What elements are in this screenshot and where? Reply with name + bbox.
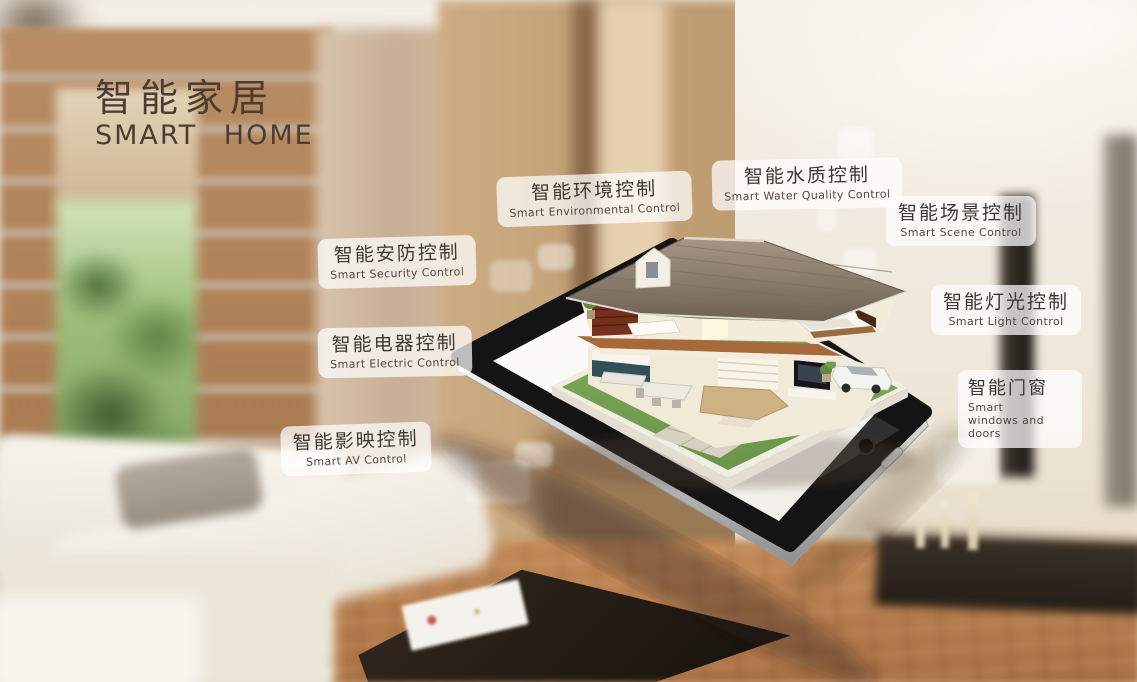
- label-text-zh: 智能安防控制: [329, 240, 464, 268]
- label-text-zh: 智能门窗: [968, 376, 1072, 401]
- car-wheel: [842, 384, 851, 393]
- label-text-zh: 智能场景控制: [898, 201, 1024, 226]
- label-security-control: 智能安防控制 Smart Security Control: [317, 235, 476, 289]
- label-text-en: Smart Scene Control: [898, 226, 1024, 239]
- label-text-zh: 智能电器控制: [330, 331, 460, 358]
- label-text-en: Smart Security Control: [330, 265, 464, 282]
- label-text-en: Smart Light Control: [943, 315, 1069, 328]
- label-text-en: Smart Water Quality Control: [724, 188, 890, 204]
- label-text-zh: 智能水质控制: [724, 163, 891, 191]
- plant-pot: [822, 374, 831, 382]
- poster-title: 智能家居 SMART HOME: [95, 76, 314, 152]
- label-electric-control: 智能电器控制 Smart Electric Control: [318, 326, 472, 379]
- label-light-control: 智能灯光控制 Smart Light Control: [931, 285, 1081, 335]
- label-text-zh: 智能灯光控制: [943, 290, 1069, 315]
- car-wheel: [872, 385, 881, 394]
- label-scene-control: 智能场景控制 Smart Scene Control: [886, 196, 1036, 246]
- label-av-control: 智能影映控制 Smart AV Control: [280, 421, 432, 476]
- title-chinese: 智能家居: [95, 76, 314, 120]
- title-english: SMART HOME: [95, 120, 314, 152]
- label-windows-doors: 智能门窗 Smart windows and doors: [958, 370, 1082, 448]
- dining-chair: [636, 388, 644, 398]
- label-text-en: Smart windows and doors: [968, 401, 1054, 440]
- dining-chair: [672, 400, 681, 408]
- label-environment-control: 智能环境控制 Smart Environmental Control: [496, 171, 693, 228]
- gable-window: [646, 262, 658, 278]
- plant-pot: [587, 310, 595, 319]
- label-text-en: Smart Electric Control: [330, 356, 460, 371]
- dining-chair: [652, 398, 661, 406]
- label-water-quality-control: 智能水质控制 Smart Water Quality Control: [712, 157, 903, 210]
- smart-home-poster: 智能家居 SMART HOME 智能环境控制 Smart Environment…: [0, 0, 1137, 682]
